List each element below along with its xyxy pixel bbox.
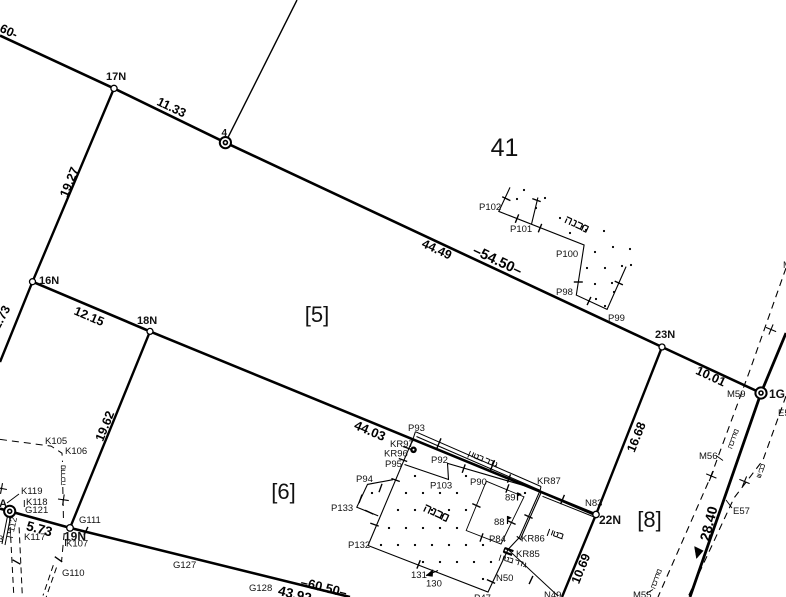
svg-text:G121: G121: [25, 505, 48, 516]
svg-text:P132: P132: [348, 540, 370, 551]
svg-text:M59: M59: [727, 389, 745, 400]
svg-text:12.15: 12.15: [72, 304, 106, 329]
svg-text:P133: P133: [331, 503, 353, 514]
svg-text:60-: 60-: [0, 21, 20, 41]
svg-text:[5]: [5]: [305, 302, 329, 327]
svg-text:41: 41: [491, 134, 519, 162]
svg-text:K105: K105: [45, 436, 67, 447]
svg-text:P94: P94: [356, 474, 373, 485]
svg-text:E57: E57: [733, 506, 750, 517]
svg-text:N50: N50: [496, 573, 513, 584]
svg-text:K107: K107: [66, 539, 88, 550]
svg-text:P90: P90: [470, 477, 487, 488]
svg-text:P93: P93: [408, 423, 425, 434]
svg-text:88: 88: [494, 517, 505, 528]
svg-text:1A: 1A: [0, 498, 7, 510]
svg-text:P99: P99: [608, 313, 625, 324]
svg-text:KR87: KR87: [537, 476, 561, 487]
svg-text:130: 130: [426, 579, 442, 590]
svg-text:M56: M56: [699, 451, 717, 462]
svg-text:[6]: [6]: [271, 479, 295, 504]
svg-text:K117: K117: [24, 532, 45, 543]
svg-text:19.27: 19.27: [57, 165, 82, 199]
svg-text:P92: P92: [431, 455, 448, 466]
svg-text:G111: G111: [79, 515, 101, 526]
svg-text:[8]: [8]: [637, 507, 661, 532]
svg-text:P95: P95: [385, 459, 402, 470]
svg-text:18N: 18N: [137, 315, 157, 327]
svg-text:P84: P84: [489, 534, 506, 545]
svg-text:M55: M55: [633, 590, 651, 597]
svg-text:4: 4: [222, 128, 228, 139]
svg-text:2.73: 2.73: [0, 303, 13, 331]
svg-text:N83: N83: [585, 498, 602, 509]
svg-text:G128: G128: [249, 583, 272, 594]
svg-text:22N: 22N: [599, 513, 621, 527]
svg-text:1G: 1G: [769, 387, 785, 401]
svg-text:P100: P100: [556, 249, 578, 260]
svg-text:23N: 23N: [655, 329, 675, 341]
svg-text:131: 131: [411, 570, 427, 581]
svg-text:89: 89: [505, 493, 516, 504]
svg-text:K119: K119: [21, 486, 42, 497]
svg-text:G127: G127: [173, 560, 196, 571]
svg-text:P102: P102: [479, 202, 501, 213]
svg-text:KR96: KR96: [384, 449, 408, 460]
svg-text:3: 3: [0, 534, 3, 545]
svg-text:P47: P47: [474, 593, 491, 597]
svg-text:16N: 16N: [39, 275, 59, 287]
svg-text:10.69: 10.69: [569, 552, 594, 586]
svg-text:N49: N49: [544, 590, 561, 597]
svg-text:19.62: 19.62: [93, 409, 118, 443]
svg-text:P98: P98: [556, 287, 573, 298]
svg-text:P103: P103: [430, 481, 452, 492]
svg-text:KR85: KR85: [516, 549, 540, 560]
svg-text:17N: 17N: [106, 71, 126, 83]
svg-text:E58: E58: [778, 408, 786, 419]
svg-text:10.01: 10.01: [694, 363, 728, 389]
svg-text:P101: P101: [510, 224, 532, 235]
svg-text:G110: G110: [62, 568, 85, 579]
svg-text:16.68: 16.68: [624, 420, 649, 454]
svg-text:KR86: KR86: [521, 534, 545, 545]
svg-text:K106: K106: [65, 446, 87, 457]
